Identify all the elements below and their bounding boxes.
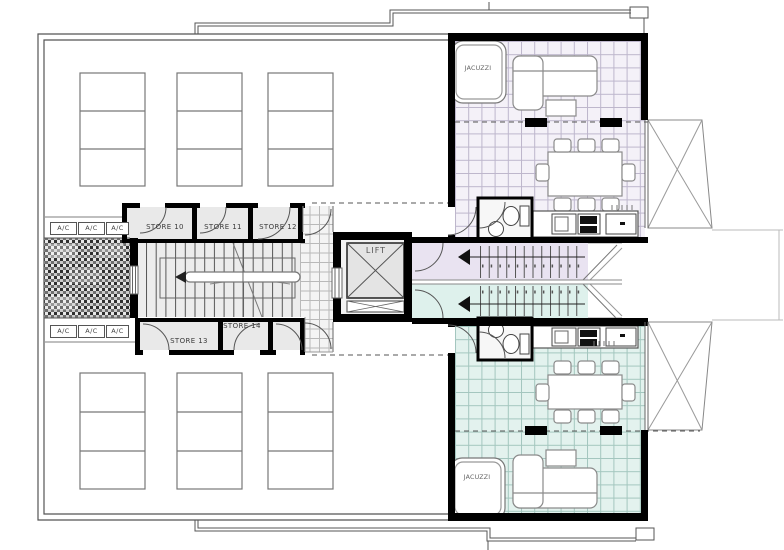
ac-unit-label: A/C bbox=[106, 222, 129, 235]
balcony-bottom bbox=[648, 322, 712, 430]
wc-tank bbox=[520, 206, 529, 226]
plan-linework bbox=[0, 0, 784, 550]
chair bbox=[554, 139, 571, 152]
wc-bowl-bottom bbox=[503, 335, 519, 354]
skylight-banks-top bbox=[80, 73, 333, 186]
wc-bowl-top bbox=[503, 207, 519, 226]
chair bbox=[578, 198, 595, 211]
chair bbox=[602, 361, 619, 374]
skylight-banks-bottom bbox=[80, 373, 333, 489]
kitchen-bottom bbox=[533, 326, 638, 348]
chair bbox=[602, 139, 619, 152]
store-11-label: STORE 11 bbox=[196, 224, 250, 231]
chair bbox=[554, 361, 571, 374]
toilet-room-top bbox=[478, 198, 532, 240]
store-10-label: STORE 10 bbox=[135, 224, 195, 231]
chair bbox=[578, 361, 595, 374]
coffee-table-bottom bbox=[546, 450, 576, 466]
ac-unit-label: A/C bbox=[50, 325, 77, 338]
store-12-label: STORE 12 bbox=[251, 224, 305, 231]
chair bbox=[622, 164, 635, 181]
chair bbox=[536, 164, 549, 181]
dining-table-top bbox=[548, 152, 622, 196]
wc-tank bbox=[520, 334, 529, 354]
stair-run-top bbox=[458, 243, 622, 280]
balcony-top bbox=[648, 120, 712, 228]
chair bbox=[602, 198, 619, 211]
jacuzzi-bottom-label: JACUZZI bbox=[451, 475, 503, 481]
adjacent-structure-lines bbox=[712, 230, 783, 320]
store-13-label: STORE 13 bbox=[157, 338, 221, 345]
floor-plan: A/C A/C A/C A/C A/C A/C STORE 10 STORE 1… bbox=[0, 0, 784, 550]
lift-door bbox=[332, 268, 342, 298]
hatched-lightwell bbox=[44, 238, 130, 318]
chair bbox=[578, 410, 595, 423]
ac-unit-label: A/C bbox=[106, 325, 129, 338]
chair bbox=[554, 198, 571, 211]
dining-table-bottom bbox=[548, 375, 622, 409]
chair bbox=[536, 384, 549, 401]
lightwell-window bbox=[130, 266, 138, 294]
chair bbox=[554, 410, 571, 423]
chair bbox=[622, 384, 635, 401]
lift-label: LIFT bbox=[352, 247, 400, 255]
ac-unit-label: A/C bbox=[78, 222, 105, 235]
store-14-label: STORE 14 bbox=[214, 323, 270, 330]
chair bbox=[578, 139, 595, 152]
chair bbox=[602, 410, 619, 423]
coffee-table-top bbox=[546, 100, 576, 116]
central-stair bbox=[146, 243, 300, 317]
jacuzzi-top-label: JACUZZI bbox=[452, 66, 504, 72]
ac-unit-label: A/C bbox=[78, 325, 105, 338]
ac-unit-label: A/C bbox=[50, 222, 77, 235]
basin-top bbox=[489, 222, 504, 237]
